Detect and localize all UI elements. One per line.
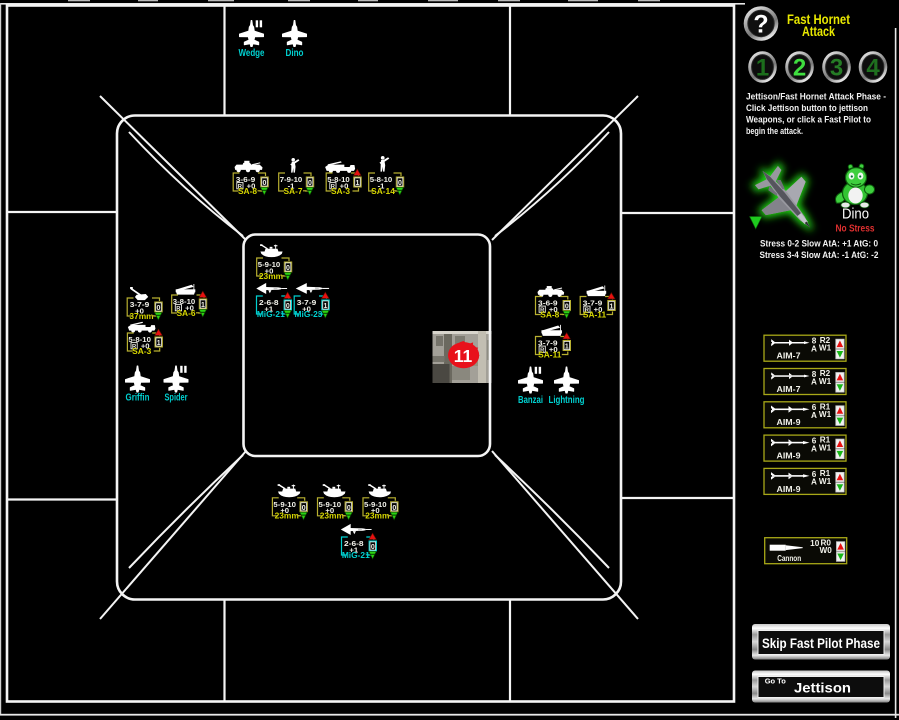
svg-text:Dino: Dino [286,48,304,59]
svg-text:W1: W1 [819,344,832,353]
svg-text:AIM-7: AIM-7 [777,384,801,394]
svg-text:W1: W1 [819,410,832,419]
svg-text:?: ? [753,11,768,39]
svg-text:begin the attack.: begin the attack. [746,126,803,137]
svg-text:0: 0 [347,505,351,512]
svg-text:No Stress: No Stress [836,223,875,235]
svg-text:1: 1 [157,340,161,347]
svg-text:1: 1 [201,302,205,309]
svg-text:23mm: 23mm [320,511,344,521]
svg-text:Skip Fast Pilot Phase: Skip Fast Pilot Phase [762,636,880,651]
svg-text:SA-3: SA-3 [132,346,151,356]
svg-text:SA-8: SA-8 [540,309,559,319]
svg-text:A: A [811,378,817,387]
svg-text:1: 1 [756,55,769,82]
svg-text:1: 1 [324,303,328,310]
svg-text:SA-11: SA-11 [538,349,562,359]
svg-text:23mm: 23mm [275,511,299,521]
svg-text:0: 0 [371,544,375,551]
svg-text:23mm: 23mm [365,511,389,521]
svg-text:SA-14: SA-14 [371,186,395,196]
svg-text:SA-11: SA-11 [583,309,607,319]
svg-text:Go To: Go To [765,677,787,686]
svg-text:0: 0 [263,180,267,187]
svg-text:0: 0 [302,505,306,512]
svg-text:Click Jettison button to jetti: Click Jettison button to jettison [746,103,868,114]
svg-text:Cannon: Cannon [777,553,801,563]
svg-text:A: A [811,344,817,353]
svg-text:23mm: 23mm [259,271,283,281]
svg-text:0: 0 [565,304,569,311]
svg-text:W1: W1 [819,444,832,453]
svg-text:0: 0 [398,180,402,187]
svg-text:1: 1 [356,180,360,187]
svg-text:1: 1 [610,304,614,311]
svg-text:0: 0 [286,303,290,310]
svg-text:W1: W1 [819,477,832,486]
svg-text:10: 10 [810,539,820,548]
svg-text:AIM-9: AIM-9 [777,417,801,427]
svg-text:0: 0 [308,180,312,187]
svg-text:Weapons, or click a Fast Pilot: Weapons, or click a Fast Pilot to [746,115,871,126]
svg-text:AIM-9: AIM-9 [777,451,801,461]
svg-text:SA-8: SA-8 [238,186,257,196]
svg-text:4: 4 [866,55,880,82]
svg-text:Dino: Dino [842,207,869,223]
svg-text:Jettison: Jettison [794,680,851,696]
svg-text:Lightning: Lightning [549,395,585,406]
svg-text:A: A [811,411,817,420]
svg-text:Griffin: Griffin [126,393,150,404]
svg-text:W0: W0 [820,546,833,555]
svg-text:0: 0 [157,305,161,312]
svg-text:AIM-7: AIM-7 [777,351,801,361]
svg-text:SA-6: SA-6 [176,308,195,318]
svg-text:AIM-9: AIM-9 [777,484,801,494]
svg-text:11: 11 [454,346,473,366]
svg-text:A: A [811,478,817,487]
svg-text:W1: W1 [819,377,832,386]
svg-text:Stress 3-4 Slow AtA: -1 AtG: -: Stress 3-4 Slow AtA: -1 AtG: -2 [760,250,879,261]
svg-text:37mm: 37mm [129,311,153,321]
svg-text:3: 3 [830,55,843,82]
svg-text:0: 0 [392,505,396,512]
svg-text:Banzai: Banzai [518,395,543,406]
svg-text:Jettison/Fast Hornet Attack Ph: Jettison/Fast Hornet Attack Phase - [746,92,886,103]
svg-text:A: A [811,444,817,453]
svg-text:1: 1 [565,344,569,351]
svg-text:Spider: Spider [165,393,188,404]
svg-text:0: 0 [286,265,290,272]
svg-text:Stress 0-2 Slow AtA: +1 AtG: 0: Stress 0-2 Slow AtA: +1 AtG: 0 [760,238,878,249]
svg-text:2: 2 [793,55,806,82]
svg-text:SA-3: SA-3 [331,186,350,196]
svg-text:Attack: Attack [802,24,835,39]
svg-text:Wedge: Wedge [239,48,265,59]
svg-text:SA-7: SA-7 [283,186,302,196]
